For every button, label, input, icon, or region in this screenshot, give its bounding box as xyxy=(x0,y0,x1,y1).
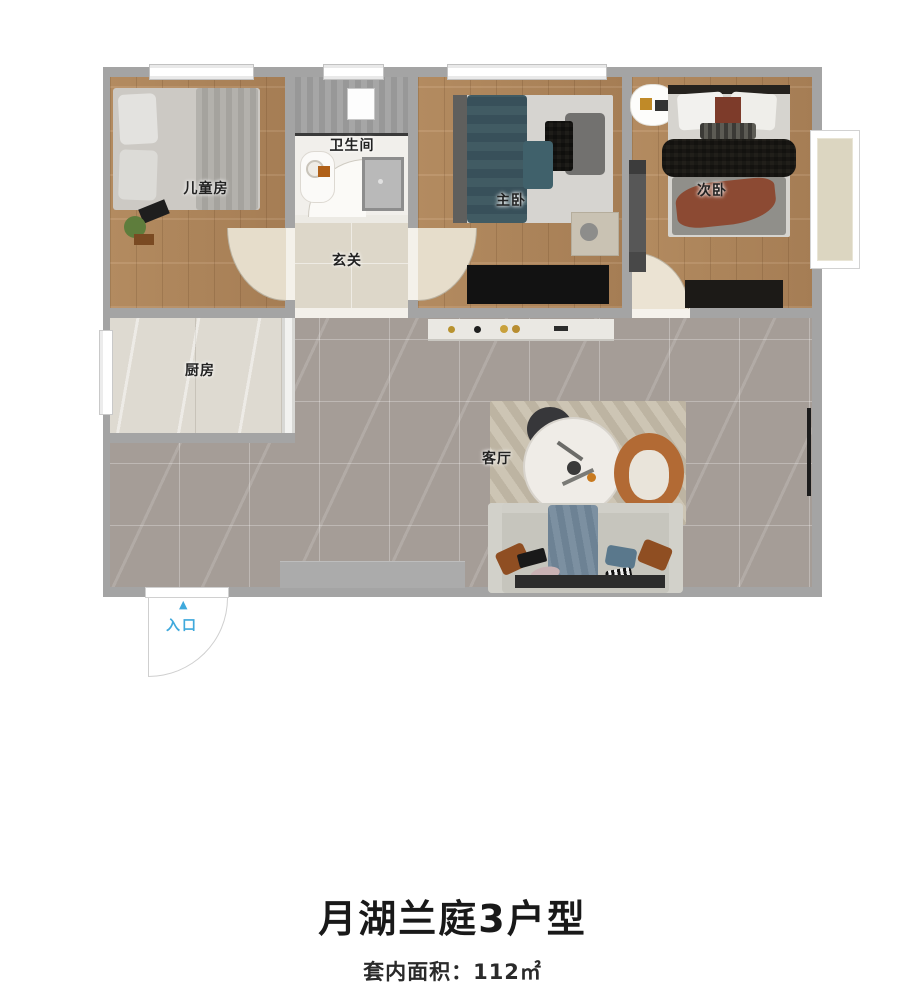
desk-master xyxy=(571,212,619,256)
floor-plan-page: 儿童房 卫生间 玄关 主卧 次卧 厨房 客厅 ▲ 入口 月湖兰庭3户型 套内面积… xyxy=(0,0,905,1003)
tv-bench-second xyxy=(685,280,783,308)
table-decor xyxy=(567,461,581,475)
armchair-orange xyxy=(614,433,684,513)
teal-cushion xyxy=(523,141,553,189)
bottle xyxy=(500,325,508,333)
bed-second xyxy=(668,85,790,237)
kitchen-glass-door xyxy=(282,318,295,433)
living-right-wall-strip xyxy=(807,408,811,496)
kitchen-window xyxy=(99,330,113,415)
entrance-door-arc xyxy=(148,598,228,677)
room-label-kitchen: 厨房 xyxy=(185,360,215,380)
shaft-vent xyxy=(347,88,375,120)
table-fruit xyxy=(587,473,596,482)
console-table xyxy=(428,319,614,341)
media-cabinet xyxy=(280,561,465,588)
room-label-children: 儿童房 xyxy=(184,178,229,198)
window-top-left xyxy=(149,64,254,80)
bay-window xyxy=(810,130,860,269)
bottle xyxy=(512,325,520,333)
shower xyxy=(362,157,404,211)
plaid-blanket xyxy=(662,139,796,177)
armchair-cushion xyxy=(629,450,669,500)
bay-window-sill xyxy=(817,138,853,261)
floor-plan: 儿童房 卫生间 玄关 主卧 次卧 厨房 客厅 ▲ 入口 xyxy=(103,67,822,597)
coffee-table xyxy=(523,417,623,516)
room-label-second: 次卧 xyxy=(697,180,727,200)
small-mat xyxy=(134,234,154,245)
sofa-mat xyxy=(515,575,665,588)
pillow-orange xyxy=(637,538,674,571)
pillow-blue xyxy=(604,545,637,570)
desk-chair xyxy=(580,223,598,241)
entrance-arrow-icon: ▲ xyxy=(179,598,187,611)
plaid-pillow xyxy=(700,123,756,139)
pillow xyxy=(118,149,158,200)
bottle xyxy=(474,326,481,333)
headboard xyxy=(668,85,790,94)
plan-area-label: 套内面积：112㎡ xyxy=(0,956,905,986)
remote xyxy=(554,326,568,331)
master-door-leaf xyxy=(408,228,418,300)
room-label-master: 主卧 xyxy=(496,190,526,210)
entrance-door-leaf xyxy=(145,587,229,598)
second-door-threshold xyxy=(632,308,690,318)
kitchen-south-wall xyxy=(110,433,295,443)
tray-item xyxy=(640,98,652,110)
room-label-living: 客厅 xyxy=(482,448,512,468)
bottle xyxy=(448,326,455,333)
room-label-bathroom: 卫生间 xyxy=(330,135,375,155)
table-decor xyxy=(557,441,584,461)
children-door-leaf xyxy=(285,228,295,300)
plan-title: 月湖兰庭3户型 xyxy=(0,888,905,943)
window-top-middle xyxy=(323,64,384,80)
window-top-right xyxy=(447,64,607,80)
tv-bench-master xyxy=(467,265,609,304)
hallway-opening xyxy=(295,308,408,318)
entrance-label: 入口 xyxy=(166,615,198,635)
book-item xyxy=(655,100,668,111)
bed-master xyxy=(453,95,613,223)
pillow xyxy=(118,93,159,145)
headboard xyxy=(453,95,467,223)
wardrobe-second xyxy=(629,160,646,272)
floor-items-children xyxy=(118,200,174,248)
bathroom-vanity xyxy=(300,151,335,203)
bathroom-tray xyxy=(318,166,330,177)
shower-drain xyxy=(378,179,383,184)
room-label-hallway: 玄关 xyxy=(332,250,362,270)
